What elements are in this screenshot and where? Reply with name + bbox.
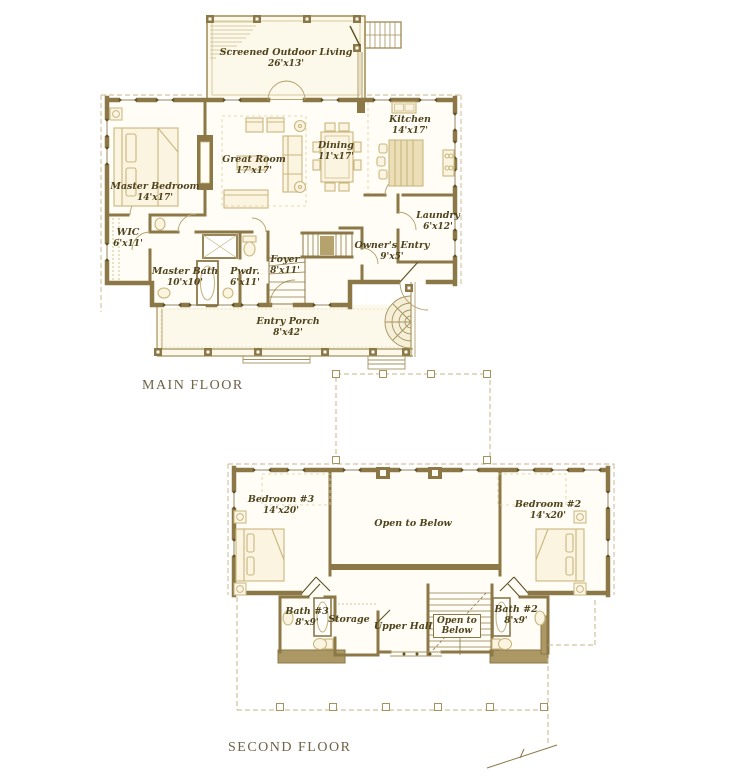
room-name: Screened Outdoor Living	[220, 48, 353, 59]
room-name: Open to	[437, 616, 477, 626]
label-owners-entry: Owner's Entry 9'x5'	[354, 241, 429, 262]
room-dims: 8'x11'	[270, 266, 300, 277]
room-name: Entry Porch	[256, 317, 319, 328]
label-screened-outdoor-living: Screened Outdoor Living 26'x13'	[220, 48, 353, 69]
label-master-bath: Master Bath 10'x10'	[152, 267, 218, 288]
room-dims: 6'x12'	[416, 222, 460, 233]
room-dims: 17'x17'	[222, 166, 286, 177]
room-dims: 14'x20'	[515, 511, 581, 522]
porch-steps	[243, 356, 405, 369]
room-name: Bedroom #3	[248, 495, 314, 506]
label-entry-porch: Entry Porch 8'x42'	[256, 317, 319, 338]
room-name: Bedroom #2	[515, 500, 581, 511]
room-dims: 8'x9'	[494, 616, 537, 627]
room-name: Dining	[318, 141, 354, 152]
room-name: Master Bedroom	[110, 182, 199, 193]
room-name: Open to Below	[374, 519, 451, 530]
second-floor-plan	[228, 371, 614, 769]
room-name: Kitchen	[389, 115, 431, 126]
room-dims: 14'x20'	[248, 506, 314, 517]
label-storage: Storage	[328, 615, 369, 626]
room-dims: 14'x17'	[110, 193, 199, 204]
dining-wall-pier	[357, 100, 365, 113]
room-name: Laundry	[416, 211, 460, 222]
room-dims: 6'x11'	[230, 278, 260, 289]
room-name: Upper Hall	[374, 622, 432, 633]
room-dims: 10'x10'	[152, 278, 218, 289]
upper-deck-dashed	[333, 371, 491, 465]
room-dims: 26'x13'	[220, 59, 353, 70]
label-bath-3: Bath #3 8'x9'	[285, 607, 328, 628]
label-laundry: Laundry 6'x12'	[416, 211, 460, 232]
room-name: Storage	[328, 615, 369, 626]
label-foyer: Foyer 8'x11'	[270, 255, 300, 276]
label-bath-2: Bath #2 8'x9'	[494, 605, 537, 626]
room-name: Bath #2	[494, 605, 537, 616]
label-open-to-below-stair: Open to Below	[433, 614, 481, 638]
label-wic: WIC 6'x11'	[113, 228, 143, 249]
room-dims: 8'x9'	[285, 618, 328, 629]
room-name: Owner's Entry	[354, 241, 429, 252]
label-bedroom-2: Bedroom #2 14'x20'	[515, 500, 581, 521]
label-pwdr: Pwdr. 6'x11'	[230, 267, 260, 288]
floor-plan-sheet: Screened Outdoor Living 26'x13' Kitchen …	[0, 0, 736, 779]
label-great-room: Great Room 17'x17'	[222, 155, 286, 176]
grade-mark	[487, 745, 557, 768]
main-floor-title: MAIN FLOOR	[142, 378, 244, 394]
room-dims: 8'x42'	[256, 328, 319, 339]
label-dining: Dining 11'x17'	[318, 141, 354, 162]
room-dims: 11'x17'	[318, 152, 354, 163]
room-name: Below	[437, 626, 477, 636]
room-dims: 9'x5'	[354, 252, 429, 263]
label-kitchen: Kitchen 14'x17'	[389, 115, 431, 136]
floor-plan-drawing	[0, 0, 736, 779]
room-name: Great Room	[222, 155, 286, 166]
room-name: Master Bath	[152, 267, 218, 278]
second-floor-title: SECOND FLOOR	[228, 740, 351, 756]
room-name: Pwdr.	[230, 267, 260, 278]
label-master-bedroom: Master Bedroom 14'x17'	[110, 182, 199, 203]
room-name: WIC	[113, 228, 143, 239]
room-name: Foyer	[270, 255, 300, 266]
room-name: Bath #3	[285, 607, 328, 618]
label-bedroom-3: Bedroom #3 14'x20'	[248, 495, 314, 516]
label-open-to-below: Open to Below	[374, 519, 451, 530]
room-dims: 14'x17'	[389, 126, 431, 137]
room-dims: 6'x11'	[113, 239, 143, 250]
label-upper-hall: Upper Hall	[374, 622, 432, 633]
